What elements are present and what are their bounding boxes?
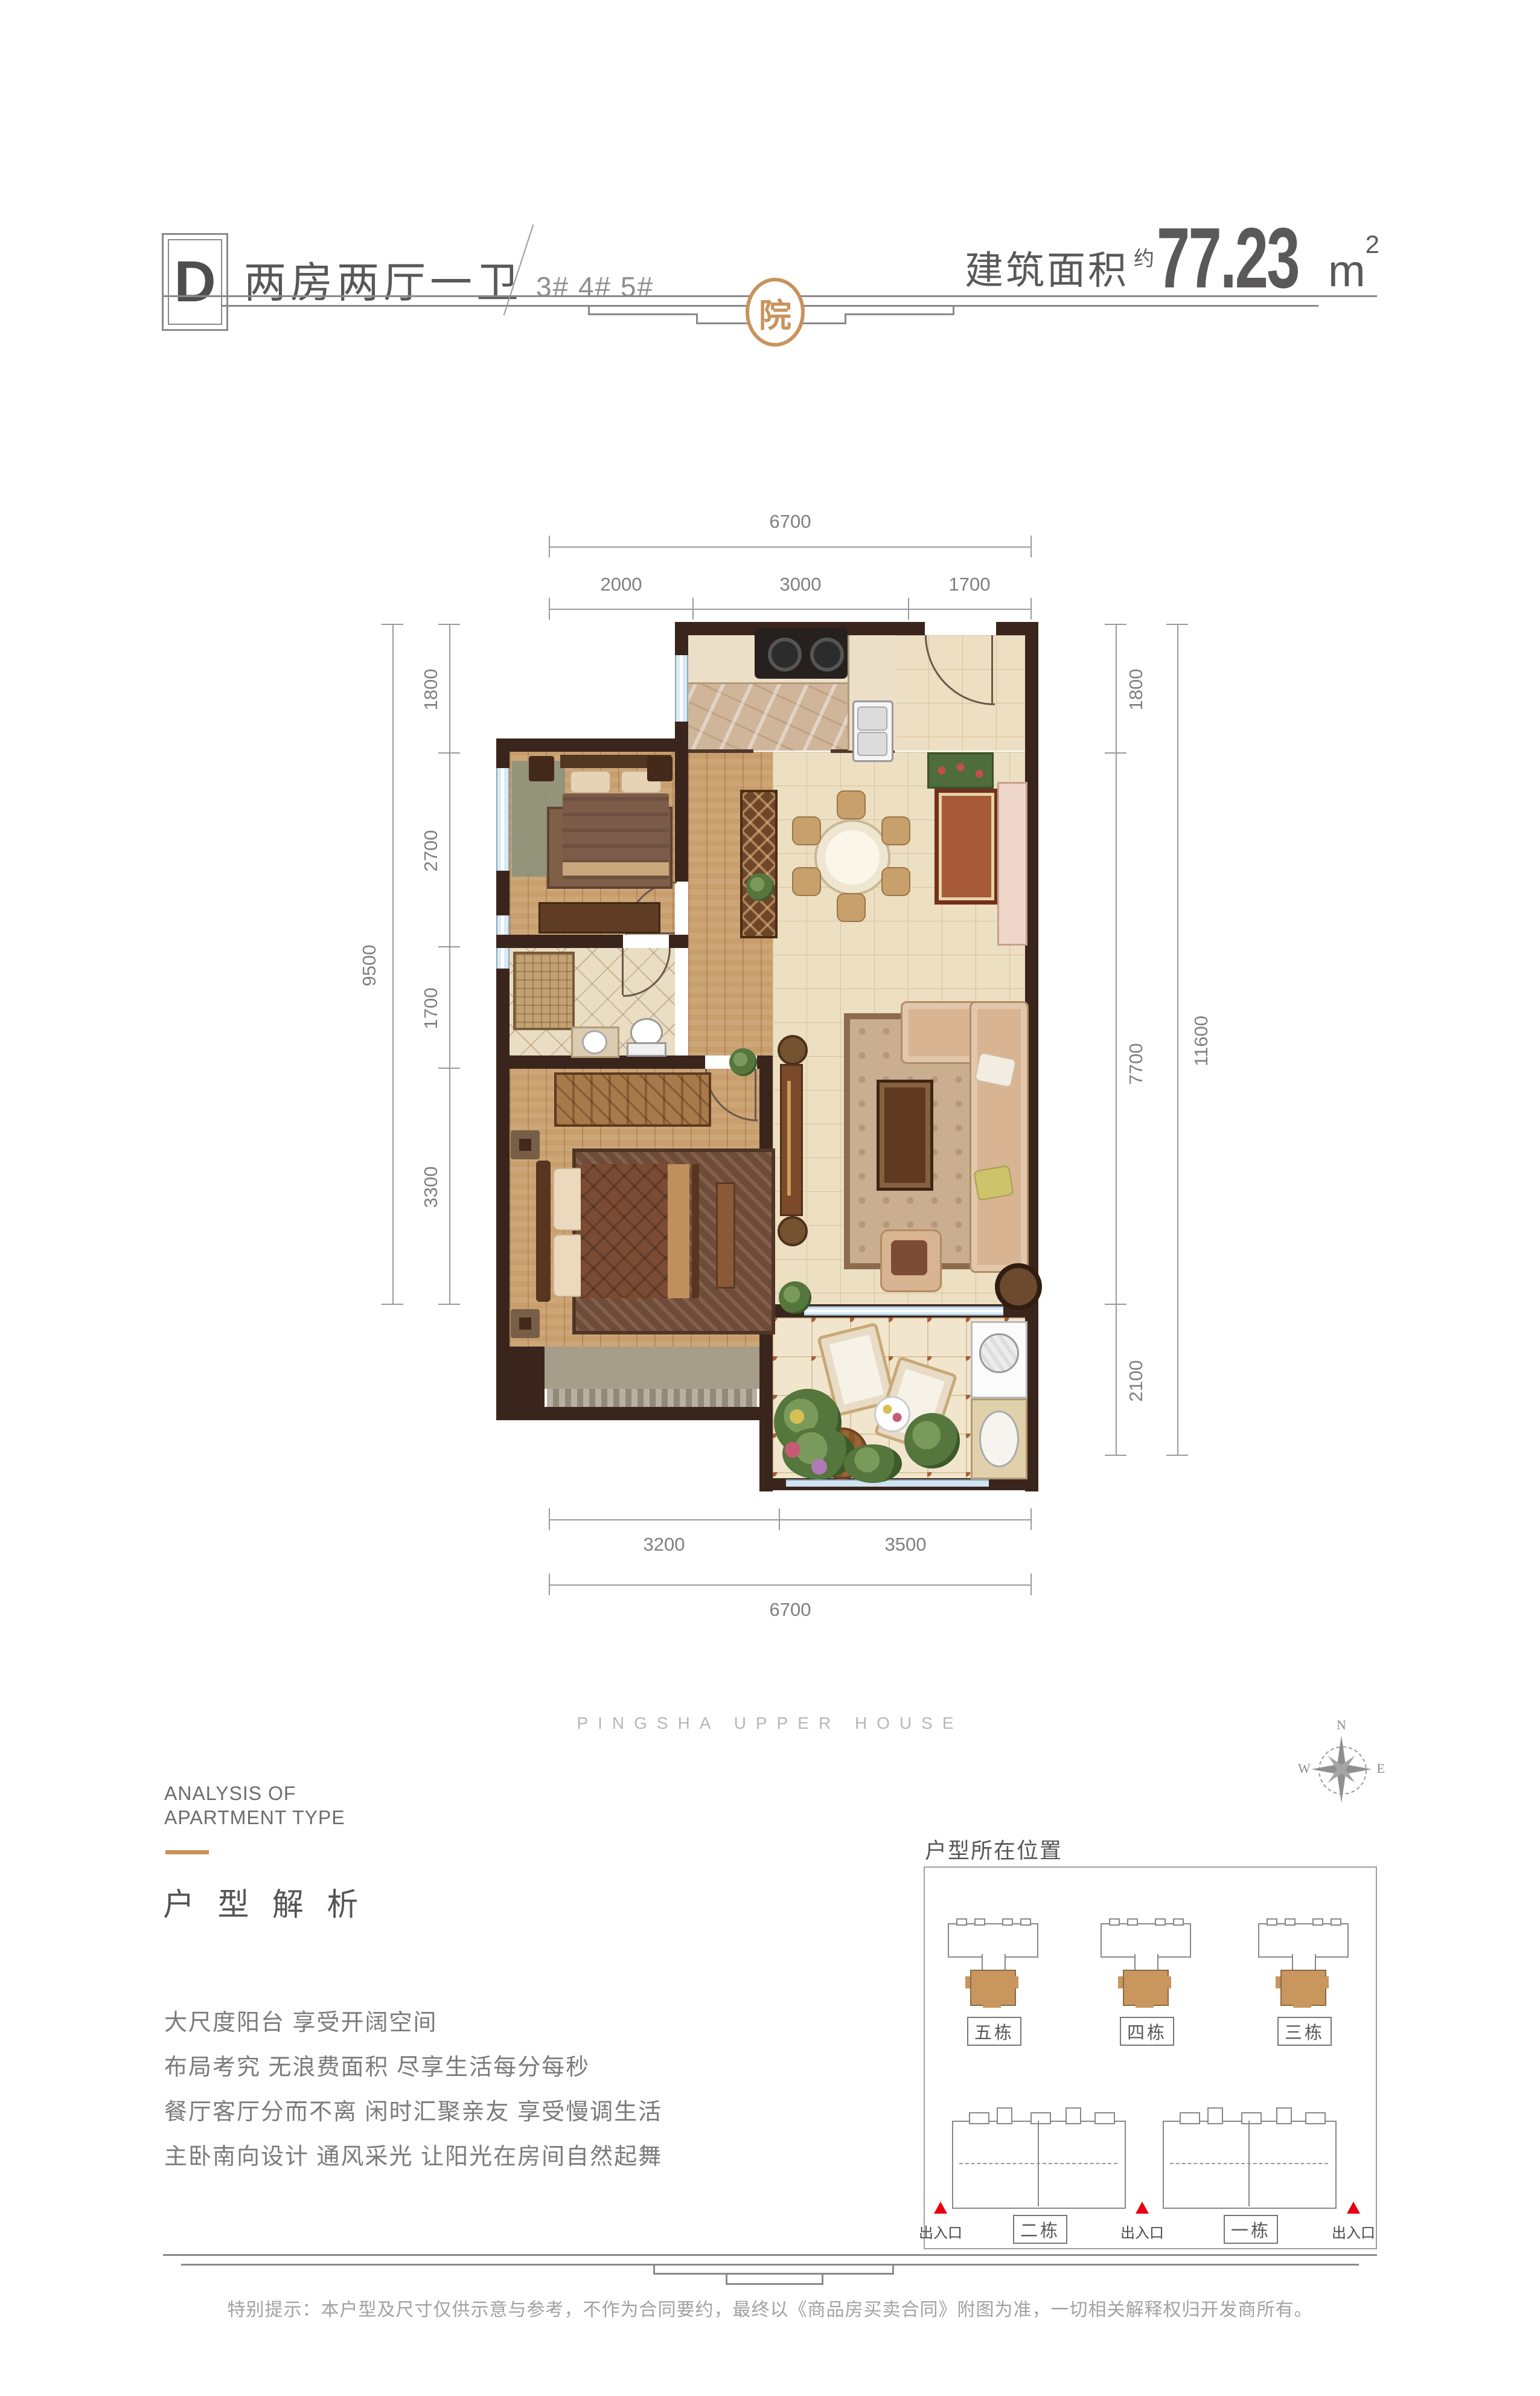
master-bed-runner [668, 1164, 689, 1298]
dim-tick [438, 752, 460, 754]
disclaimer-text: 特别提示：本户型及尺寸仅供示意与参考，不作为合同要约，最终以《商品房买卖合同》附… [0, 2295, 1540, 2321]
building-label-3: 三栋 [1277, 2017, 1332, 2046]
feature-line: 餐厅客厅分而不离 闲时汇聚亲友 享受慢调生活 [164, 2093, 662, 2126]
location-title: 户型所在位置 [925, 1833, 1062, 1865]
building-label-text: 五栋 [974, 2019, 1014, 2044]
dim-tick [438, 1068, 460, 1069]
entrance-label: 出入口 [1317, 2221, 1390, 2242]
building-tab [1030, 2112, 1051, 2124]
building-tab [969, 2112, 989, 2124]
building-tab [1276, 2107, 1292, 2124]
compass: N W E [1298, 1717, 1385, 1808]
floorplan-brochure-page: D 两房两厅一卫 3# 4# 5# 建筑面积 约 77.23 m 2 院 670… [0, 0, 1540, 2396]
dim-tick [908, 598, 909, 620]
master-bay-seat [545, 1347, 759, 1389]
dim-line [392, 624, 394, 1304]
divider-step [845, 313, 954, 315]
unit-buildings: 3# 4# 5# [536, 271, 654, 303]
building-unit-tab [1118, 1976, 1123, 1988]
balcony-glass-railing [786, 1479, 989, 1487]
bedroom2-nightstand [529, 756, 554, 781]
bathroom-door-leaf [622, 948, 624, 995]
dim-left-seg-2: 2700 [420, 802, 442, 899]
dining-chair [881, 816, 910, 845]
console-pot [778, 1216, 808, 1246]
dim-line [549, 1519, 1031, 1520]
bedroom2-door-opening [675, 882, 688, 935]
building-tab [1312, 1918, 1323, 1926]
flower-plate [874, 1396, 910, 1432]
garden-shrub [844, 1444, 902, 1483]
divider-bottom-line-a [163, 2254, 1377, 2256]
building-label-5: 五栋 [967, 2017, 1021, 2046]
analysis-en-line2: APARTMENT TYPE [164, 1805, 345, 1830]
divider-step [653, 2273, 894, 2275]
master-footboard [692, 1164, 699, 1298]
dim-line [1177, 624, 1178, 1455]
dining-chair [837, 893, 866, 922]
building-tab [1109, 1918, 1120, 1926]
building-tab [1173, 1918, 1184, 1926]
compass-w-label: W [1298, 1761, 1311, 1776]
divider-step [892, 2264, 894, 2275]
building-unit-tab [1136, 2004, 1154, 2008]
building-tab [1207, 2107, 1223, 2124]
divider-step [696, 322, 749, 324]
washer-drum [979, 1333, 1019, 1373]
kitchen-sink-basin [857, 706, 887, 731]
entrance-marker-icon [934, 2202, 947, 2214]
tv-console [780, 1064, 803, 1216]
building-unit-tab [983, 2004, 1001, 2008]
master-wardrobe [554, 1072, 711, 1127]
dim-right-seg-2: 7700 [1125, 1016, 1147, 1112]
wine-cabinet [740, 790, 778, 938]
entry-rug [935, 789, 998, 905]
building-tab [1066, 2107, 1081, 2124]
garden-flower [790, 1409, 804, 1424]
building-stem [1134, 1954, 1158, 1971]
dim-tick [549, 598, 550, 620]
dim-left-seg-1: 1800 [420, 641, 442, 738]
laundry-basin [979, 1411, 1019, 1467]
potted-plant [729, 1048, 757, 1076]
wall-bed2-bath-right [669, 935, 688, 948]
dining-chair [881, 867, 910, 896]
toilet-tank [627, 1042, 666, 1057]
area-approx: 约 [1134, 249, 1154, 269]
area-unit: m [1328, 249, 1366, 293]
building-tab [1020, 1918, 1031, 1926]
building-tab [1285, 1918, 1296, 1926]
dim-tick [549, 1574, 550, 1595]
area-value-wrap: 77.23 [1157, 227, 1324, 293]
building-tab [1241, 2112, 1262, 2124]
building-tab [1331, 1918, 1341, 1926]
master-pillow [553, 1168, 584, 1231]
entrance-marker-icon [1347, 2202, 1360, 2214]
potted-plant [746, 873, 774, 901]
sofa-pillow-yellow [973, 1165, 1014, 1201]
dim-tick [1030, 598, 1032, 620]
dim-bottom-seg-1: 3200 [604, 1534, 724, 1555]
building-body [952, 2121, 1126, 2209]
dim-tick [1030, 536, 1032, 557]
brand-seal-icon: 院 [746, 278, 805, 347]
building-wing [1258, 1923, 1349, 1958]
entry-door-leaf [991, 635, 993, 703]
dim-left-total: 9500 [359, 917, 380, 1014]
dim-tick [1105, 624, 1126, 625]
divider-bottom-line-b [181, 2264, 1359, 2266]
building-stem [1292, 1954, 1316, 1971]
console-pot [778, 1035, 808, 1065]
dim-line [549, 546, 1031, 548]
dim-tick [779, 1508, 780, 1530]
wall-bedroom2-top [496, 738, 688, 752]
entrance-label-text: 出入口 [1120, 2225, 1164, 2241]
building-y [948, 1917, 1038, 2008]
building-y [1258, 1917, 1349, 2008]
area-label: 建筑面积 [965, 251, 1129, 290]
tv-console-trim [787, 1081, 791, 1196]
entrance-label-text: 出入口 [919, 2225, 962, 2241]
building-tab [974, 1918, 985, 1926]
dim-tick [1030, 1574, 1032, 1595]
dim-tick [1105, 1304, 1126, 1305]
bathroom-basin [582, 1030, 607, 1054]
entrance-label-text: 出入口 [1332, 2225, 1375, 2241]
bedroom2-nightstand [647, 756, 673, 781]
kitchen-sink-basin [857, 732, 887, 756]
wall-bath-master-right [757, 1055, 773, 1069]
dim-tick [549, 1508, 550, 1530]
dim-left-seg-3: 1700 [420, 960, 442, 1057]
bedroom2-bay-window [496, 768, 510, 871]
bedroom2-pillow [570, 770, 611, 793]
dim-top-total: 6700 [549, 511, 1031, 533]
kitchen-window [675, 655, 688, 722]
sofa-side-section [970, 1001, 1029, 1273]
dim-tick [438, 946, 460, 947]
floor-bowl [995, 1263, 1042, 1310]
dim-tick [382, 624, 403, 625]
dining-chair [837, 790, 866, 819]
building-stem [982, 1954, 1006, 1971]
building-wing [948, 1923, 1038, 1958]
bedroom2-sideboard [538, 902, 660, 934]
dim-top-seg-1: 2000 [561, 574, 682, 595]
entrance-label: 出入口 [1106, 2221, 1178, 2242]
building-tab [1127, 1918, 1138, 1926]
unit-letter: D [174, 249, 216, 315]
dim-tick [1166, 624, 1188, 625]
dim-line [549, 1584, 1031, 1586]
master-nightstand [511, 1309, 540, 1338]
seal-character: 院 [759, 289, 791, 336]
coffee-table [877, 1080, 933, 1191]
garden-palm [904, 1413, 960, 1469]
building-unit-highlight [970, 1970, 1016, 2006]
dim-tick [1105, 1455, 1126, 1456]
building-label-2: 二栋 [1013, 2215, 1067, 2244]
garden-flower [811, 1459, 827, 1475]
dim-tick [438, 1304, 460, 1305]
dining-table [814, 819, 890, 895]
building-label-1: 一栋 [1224, 2215, 1278, 2244]
dim-bottom-total: 6700 [549, 1599, 1031, 1621]
divider-step [953, 305, 954, 315]
master-door-leaf [755, 1069, 756, 1120]
dim-line [549, 609, 1031, 610]
dim-tick [1105, 752, 1126, 754]
kitchen-counter-stub-left [688, 749, 753, 753]
dim-tick [549, 536, 550, 557]
building-body [1163, 2121, 1337, 2209]
building-label-text: 三栋 [1285, 2019, 1324, 2044]
unit-letter-box: D [162, 233, 228, 331]
building-unit-tab [1293, 2004, 1311, 2008]
building-wing [1101, 1923, 1191, 1958]
building-tab [1002, 1918, 1013, 1926]
feature-line: 主卧南向设计 通风采光 让阳光在房间自然起舞 [164, 2138, 662, 2171]
building-unit-tab [1166, 1976, 1171, 1988]
divider-step [822, 2273, 823, 2285]
building-label-text: 四栋 [1127, 2019, 1167, 2044]
dim-top-seg-2: 3000 [740, 574, 861, 595]
building-twin [952, 2107, 1126, 2209]
analysis-en-title: ANALYSIS OF APARTMENT TYPE [164, 1781, 345, 1830]
building-tab [956, 1918, 967, 1926]
building-tab [1094, 2112, 1115, 2124]
building-unit-tab [1014, 1976, 1018, 1988]
dim-tick [1166, 1455, 1188, 1456]
master-headboard [536, 1161, 551, 1302]
divider-step [726, 2283, 823, 2285]
dim-top-seg-3: 1700 [909, 574, 1030, 595]
area-block: 建筑面积 约 77.23 m 2 [965, 199, 1379, 293]
building-unit-tab [1324, 1976, 1329, 1988]
dim-tick [1030, 1508, 1032, 1530]
building-label-text: 二栋 [1020, 2217, 1060, 2242]
feature-line: 布局考究 无浪费面积 尽享生活每分每秒 [164, 2048, 590, 2081]
building-unit-tab [1276, 1976, 1280, 1988]
shoe-cabinet [997, 782, 1027, 946]
building-tab [1305, 2112, 1326, 2124]
analysis-accent-bar [165, 1850, 209, 1854]
bathroom-door-opening [623, 935, 669, 948]
building-twin [1163, 2107, 1337, 2209]
master-bay-blinds [547, 1389, 757, 1407]
dim-line [1116, 624, 1117, 1455]
building-tab [1180, 2112, 1200, 2124]
balcony-sliding-door [804, 1306, 1003, 1316]
area-value: 77.23 [1157, 223, 1299, 293]
wall-master-bay-side [510, 1347, 545, 1407]
flower-planter [927, 752, 994, 789]
building-tab [1267, 1918, 1277, 1926]
dim-line [449, 624, 450, 1304]
wall-bed2-bath-left [496, 935, 623, 948]
analysis-en-line1: ANALYSIS OF [164, 1781, 345, 1805]
building-unit-highlight [1280, 1970, 1326, 2006]
analysis-cn-title: 户 型 解 析 [163, 1879, 365, 1924]
wall-master-bay-bottom [496, 1407, 773, 1420]
stove-burner [810, 638, 844, 671]
master-nightstand [511, 1130, 540, 1159]
unit-title: 两房两厅一卫 [244, 240, 523, 325]
entrance-marker-icon [1136, 2202, 1149, 2214]
dim-right-seg-1: 1800 [1125, 641, 1147, 738]
entrance-label: 出入口 [904, 2221, 977, 2242]
dim-left-seg-4: 3300 [420, 1139, 442, 1235]
building-label-text: 一栋 [1231, 2217, 1271, 2242]
building-dash-line [1170, 2163, 1328, 2164]
dim-bottom-seg-2: 3500 [845, 1534, 966, 1555]
building-y [1101, 1917, 1191, 2008]
compass-n-label: N [1298, 1717, 1385, 1733]
master-pillow [553, 1234, 584, 1297]
dim-tick [438, 624, 460, 625]
building-tab [1155, 1918, 1166, 1926]
compass-e-label: E [1377, 1761, 1385, 1776]
floor-plant [779, 1281, 811, 1314]
dim-tick [692, 598, 694, 620]
feature-line: 大尺度阳台 享受开阔空间 [164, 2004, 438, 2037]
armchair-cushion [891, 1240, 927, 1275]
building-tab [997, 2107, 1012, 2124]
building-label-4: 四栋 [1120, 2017, 1174, 2046]
dim-right-total: 11600 [1190, 993, 1212, 1089]
shower [513, 952, 575, 1030]
dim-right-seg-3: 2100 [1125, 1333, 1147, 1429]
stove-burner [768, 638, 802, 671]
divider-step [588, 313, 698, 315]
area-unit-sup: 2 [1366, 232, 1379, 257]
building-unit-highlight [1123, 1970, 1169, 2006]
building-unit-tab [965, 1976, 970, 1988]
bed-bench [716, 1182, 735, 1289]
dining-chair [792, 816, 821, 845]
dining-chair [792, 867, 821, 896]
garden-flower [785, 1442, 800, 1458]
bedroom2-bed-runner [563, 862, 669, 876]
dim-tick [382, 1304, 403, 1305]
building-dash-line [959, 2163, 1117, 2164]
